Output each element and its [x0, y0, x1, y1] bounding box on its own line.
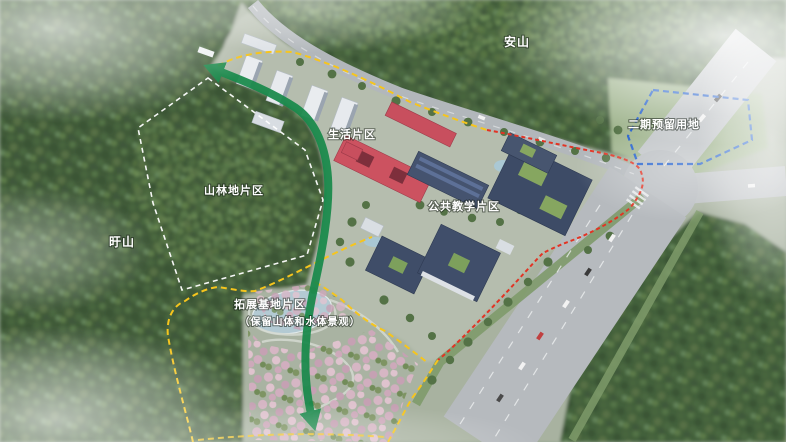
label-anshan: 安山: [504, 34, 530, 49]
site-plan-rendering: 安山 二期预留用地 生活片区 山林地片区 旴山 公共教学片区 拓展基地片区 （保…: [0, 0, 786, 442]
label-extension-base-area: 拓展基地片区: [234, 297, 306, 311]
label-public-teaching-area: 公共教学片区: [428, 199, 500, 213]
label-extension-base-note: （保留山体和水体景观）: [240, 315, 361, 328]
label-mountain-forest-area: 山林地片区: [204, 183, 264, 197]
label-phase2-reserved: 二期预留用地: [628, 117, 700, 131]
label-living-area: 生活片区: [328, 127, 376, 141]
label-xushan: 旴山: [109, 234, 135, 249]
